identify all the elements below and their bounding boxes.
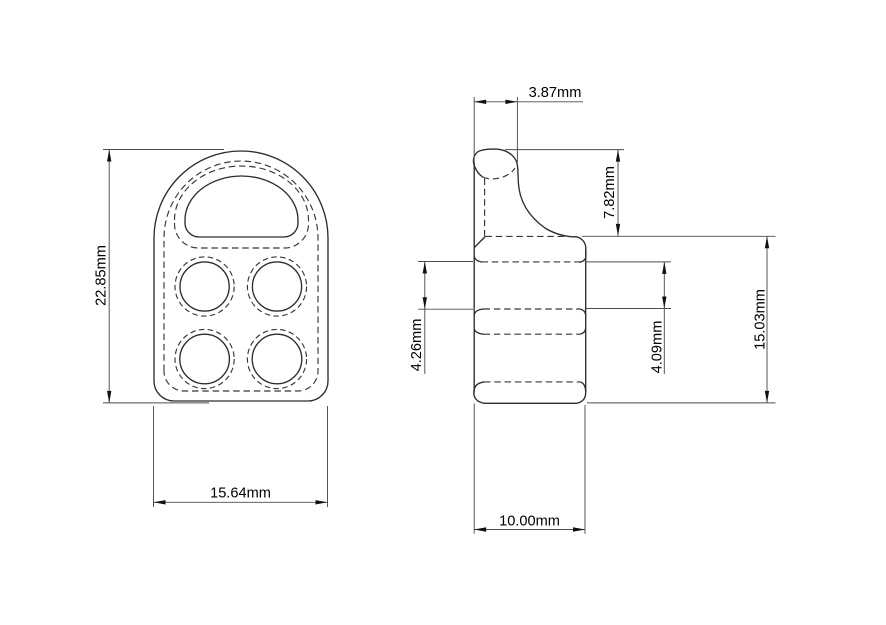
svg-text:4.09mm: 4.09mm bbox=[650, 321, 666, 374]
svg-text:15.64mm: 15.64mm bbox=[210, 485, 271, 501]
svg-text:4.26mm: 4.26mm bbox=[409, 319, 425, 372]
svg-text:3.87mm: 3.87mm bbox=[529, 85, 582, 101]
svg-text:22.85mm: 22.85mm bbox=[94, 245, 110, 306]
svg-text:10.00mm: 10.00mm bbox=[499, 514, 560, 530]
svg-text:15.03mm: 15.03mm bbox=[753, 289, 769, 350]
svg-text:7.82mm: 7.82mm bbox=[602, 166, 618, 219]
